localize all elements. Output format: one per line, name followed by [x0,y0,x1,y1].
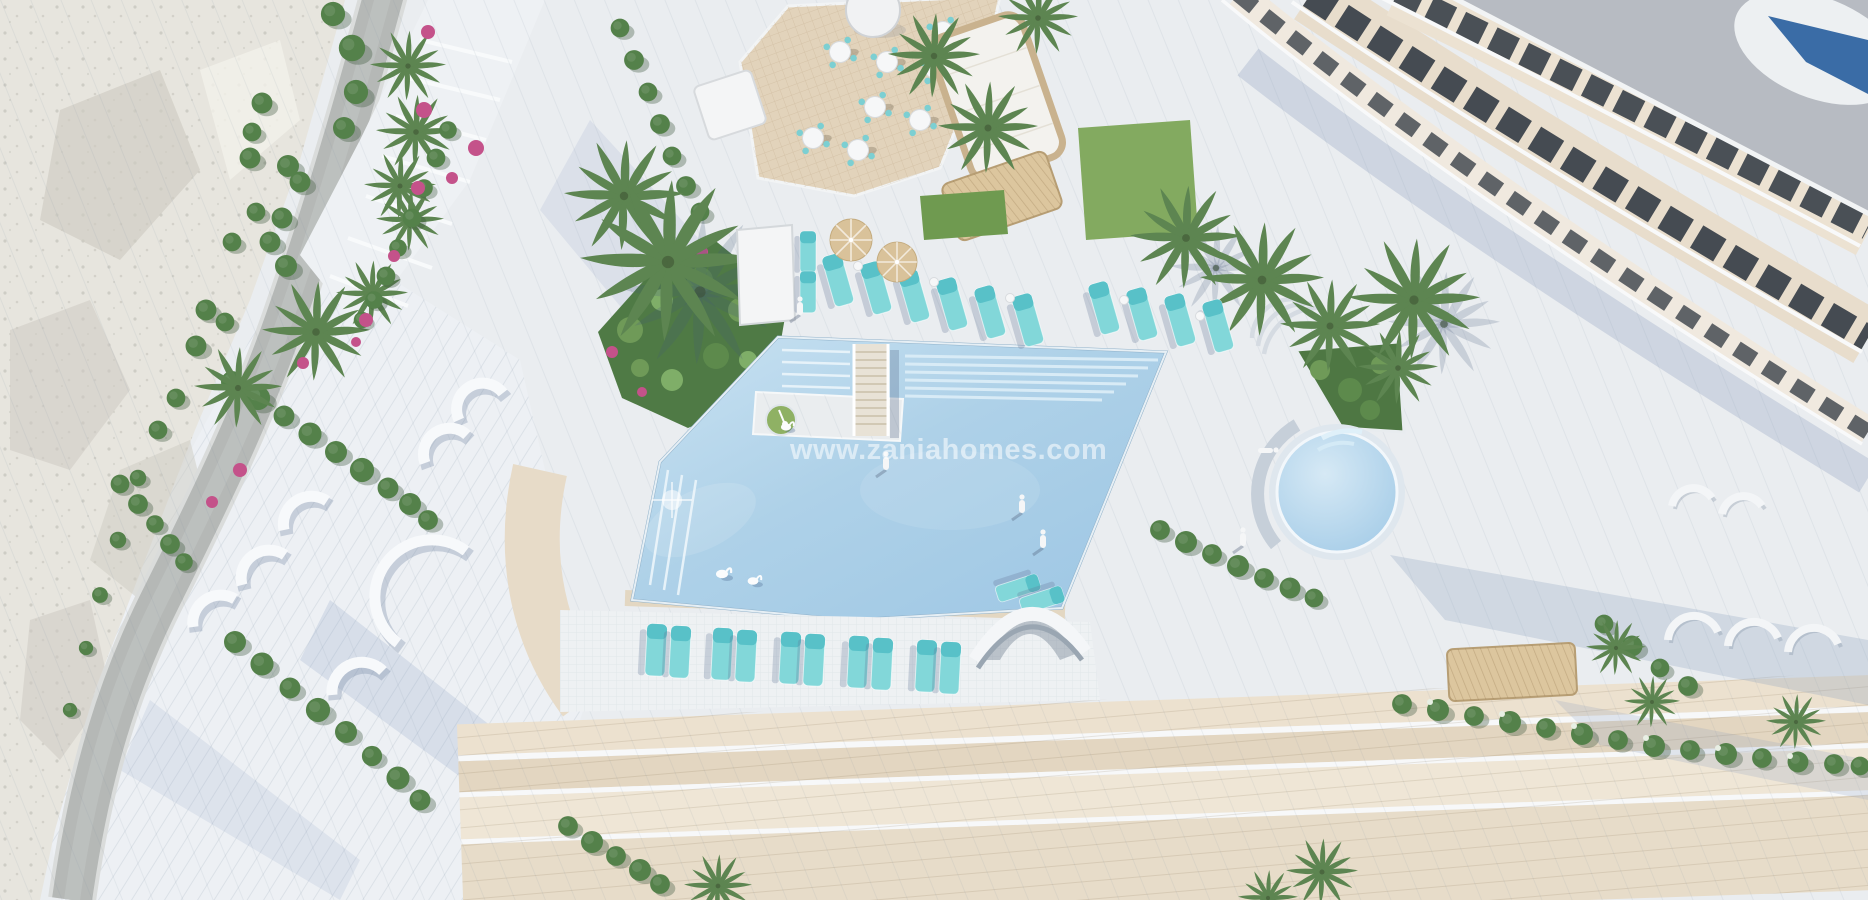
pool-bridge [854,344,899,438]
watermark: www.zaniahomes.com [790,434,1090,467]
lawn-patch [920,190,1008,240]
parasol [877,242,917,282]
person-lounging [1258,447,1279,453]
pergola-roof [1447,643,1578,702]
aerial-resort-render: www.zaniahomes.com [0,0,1868,900]
parasol [830,219,872,261]
changing-hut [737,225,816,325]
round-pool [1258,424,1405,560]
